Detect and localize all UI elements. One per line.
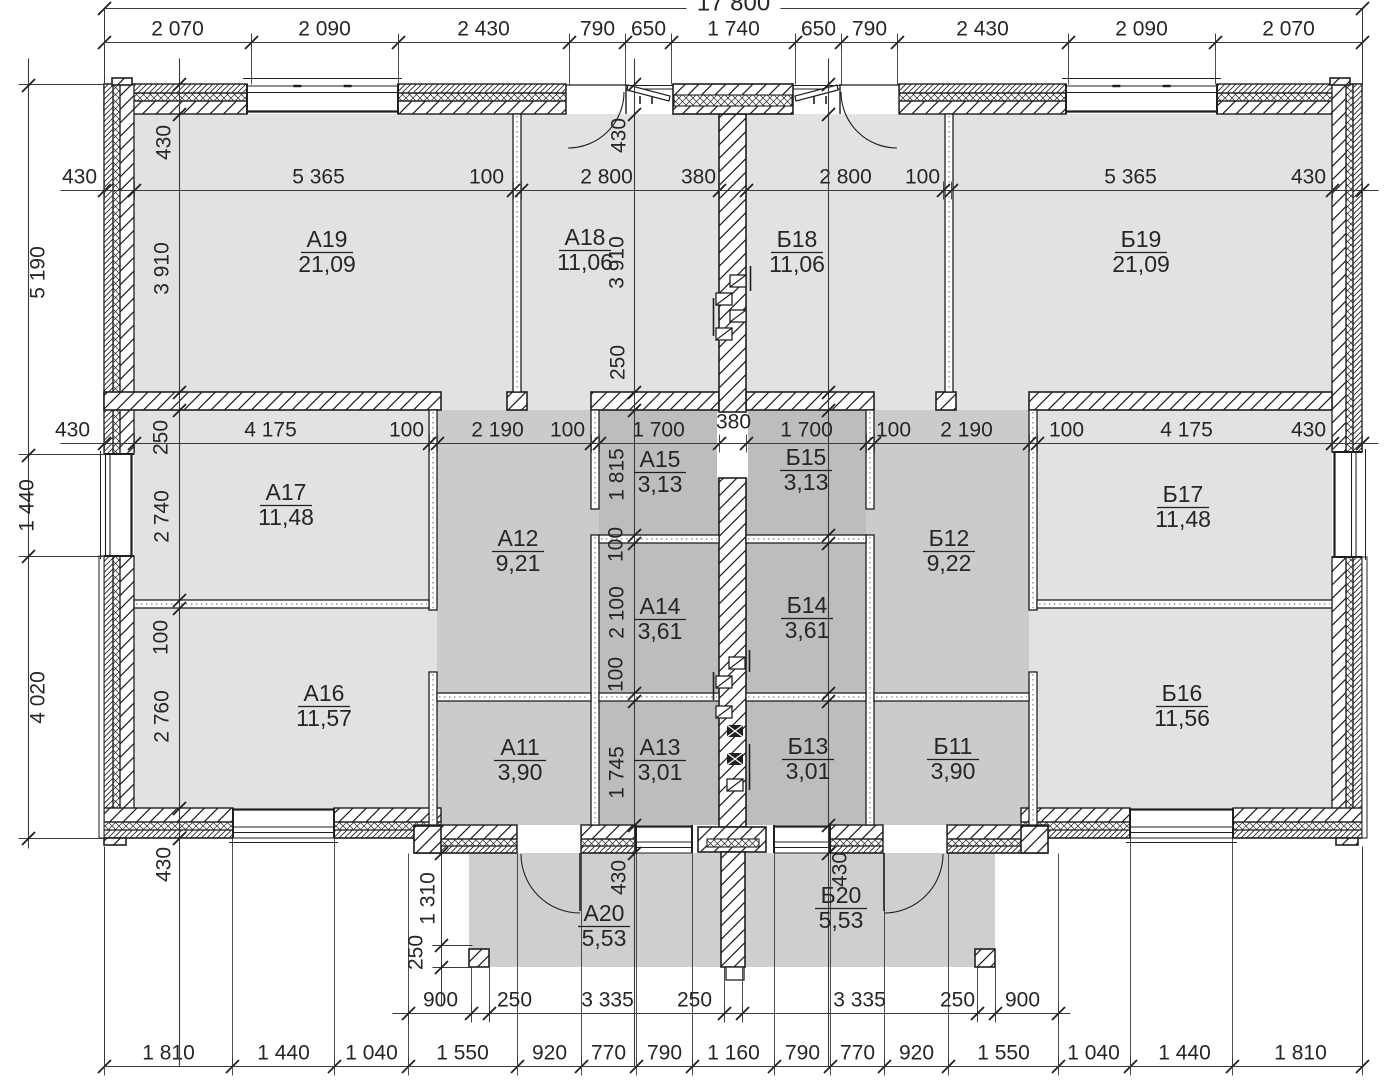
svg-text:5 190: 5 190 — [27, 246, 50, 299]
svg-text:А17: А17 — [266, 479, 307, 505]
svg-text:790: 790 — [852, 18, 887, 41]
svg-text:11,06: 11,06 — [769, 251, 825, 277]
svg-text:430: 430 — [62, 166, 97, 189]
svg-text:770: 770 — [840, 1042, 875, 1065]
svg-text:430: 430 — [55, 419, 90, 442]
svg-text:100: 100 — [905, 166, 940, 189]
svg-text:2 070: 2 070 — [1262, 18, 1315, 41]
svg-text:1 040: 1 040 — [345, 1042, 398, 1065]
svg-text:Б18: Б18 — [777, 226, 818, 252]
svg-text:1 550: 1 550 — [977, 1042, 1030, 1065]
svg-text:790: 790 — [785, 1042, 820, 1065]
svg-text:1 815: 1 815 — [606, 448, 629, 501]
svg-text:100: 100 — [389, 419, 424, 442]
svg-text:3,61: 3,61 — [638, 618, 683, 644]
svg-text:2 190: 2 190 — [940, 419, 993, 442]
svg-text:11,56: 11,56 — [1154, 705, 1210, 731]
svg-text:100: 100 — [605, 657, 628, 692]
svg-text:770: 770 — [591, 1042, 626, 1065]
svg-text:250: 250 — [940, 989, 975, 1012]
svg-text:430: 430 — [153, 847, 176, 882]
svg-text:4 175: 4 175 — [1160, 419, 1213, 442]
svg-text:2 100: 2 100 — [606, 586, 629, 639]
svg-text:11,48: 11,48 — [258, 504, 314, 530]
svg-text:2 800: 2 800 — [580, 166, 633, 189]
svg-text:11,48: 11,48 — [1155, 506, 1211, 532]
svg-text:9,21: 9,21 — [496, 550, 541, 576]
svg-text:3,01: 3,01 — [786, 758, 831, 784]
svg-text:430: 430 — [1291, 419, 1326, 442]
svg-text:А18: А18 — [565, 224, 606, 250]
svg-text:3,13: 3,13 — [638, 471, 683, 497]
svg-text:4 175: 4 175 — [244, 419, 297, 442]
svg-text:3,13: 3,13 — [784, 469, 829, 495]
svg-text:1 160: 1 160 — [707, 1042, 760, 1065]
svg-text:920: 920 — [532, 1042, 567, 1065]
svg-text:2 090: 2 090 — [298, 18, 351, 41]
svg-text:3 910: 3 910 — [151, 242, 174, 295]
svg-text:2 800: 2 800 — [819, 166, 872, 189]
svg-text:5 365: 5 365 — [1104, 166, 1157, 189]
svg-text:250: 250 — [497, 989, 532, 1012]
svg-text:2 740: 2 740 — [151, 490, 174, 543]
svg-text:4 020: 4 020 — [27, 671, 50, 724]
svg-text:9,22: 9,22 — [927, 550, 972, 576]
svg-text:1 440: 1 440 — [16, 479, 39, 532]
svg-text:100: 100 — [876, 419, 911, 442]
svg-text:1 310: 1 310 — [417, 872, 440, 925]
svg-text:100: 100 — [550, 419, 585, 442]
svg-text:1 740: 1 740 — [707, 18, 760, 41]
svg-text:250: 250 — [607, 345, 630, 380]
svg-text:100: 100 — [1049, 419, 1084, 442]
svg-text:1 810: 1 810 — [1274, 1042, 1327, 1065]
svg-text:650: 650 — [631, 18, 666, 41]
svg-text:3 335: 3 335 — [581, 989, 634, 1012]
svg-text:А12: А12 — [498, 525, 539, 551]
svg-text:2 430: 2 430 — [457, 18, 510, 41]
svg-text:Б15: Б15 — [786, 444, 827, 470]
svg-text:5 365: 5 365 — [292, 166, 345, 189]
svg-text:5,53: 5,53 — [819, 907, 864, 933]
svg-text:1 700: 1 700 — [632, 419, 685, 442]
svg-text:2 090: 2 090 — [1115, 18, 1168, 41]
svg-text:1 810: 1 810 — [142, 1042, 195, 1065]
svg-text:Б13: Б13 — [788, 733, 829, 759]
svg-text:11,57: 11,57 — [296, 705, 352, 731]
svg-text:3,90: 3,90 — [498, 759, 543, 785]
svg-text:Б12: Б12 — [929, 525, 970, 551]
svg-text:920: 920 — [899, 1042, 934, 1065]
svg-text:Б16: Б16 — [1162, 680, 1203, 706]
svg-text:3,61: 3,61 — [785, 617, 830, 643]
svg-text:250: 250 — [150, 420, 173, 455]
svg-text:1 440: 1 440 — [1158, 1042, 1211, 1065]
svg-text:21,09: 21,09 — [298, 251, 356, 277]
svg-text:900: 900 — [1005, 989, 1040, 1012]
svg-text:А16: А16 — [304, 680, 345, 706]
svg-text:3,90: 3,90 — [931, 758, 976, 784]
svg-text:430: 430 — [608, 118, 631, 153]
svg-text:250: 250 — [677, 989, 712, 1012]
svg-text:Б20: Б20 — [821, 882, 862, 908]
svg-text:100: 100 — [605, 527, 628, 562]
svg-text:790: 790 — [580, 18, 615, 41]
svg-text:2 430: 2 430 — [956, 18, 1009, 41]
svg-text:380: 380 — [681, 166, 716, 189]
svg-text:5,53: 5,53 — [582, 925, 627, 951]
svg-text:А11: А11 — [500, 734, 539, 760]
svg-text:А19: А19 — [307, 226, 348, 252]
svg-text:3 335: 3 335 — [833, 989, 886, 1012]
svg-text:430: 430 — [608, 860, 631, 895]
svg-text:Б14: Б14 — [787, 592, 828, 618]
svg-text:1 440: 1 440 — [257, 1042, 310, 1065]
svg-text:11,06: 11,06 — [557, 249, 613, 275]
svg-text:790: 790 — [647, 1042, 682, 1065]
svg-text:Б11: Б11 — [934, 733, 973, 759]
svg-text:1 700: 1 700 — [780, 419, 833, 442]
svg-text:А15: А15 — [640, 446, 681, 472]
svg-text:17 800: 17 800 — [697, 0, 770, 17]
svg-text:1 040: 1 040 — [1067, 1042, 1120, 1065]
svg-text:250: 250 — [405, 935, 428, 970]
svg-text:2 760: 2 760 — [151, 690, 174, 743]
svg-text:1 745: 1 745 — [606, 746, 629, 799]
svg-text:430: 430 — [153, 125, 176, 160]
svg-text:Б17: Б17 — [1163, 481, 1204, 507]
svg-text:1 550: 1 550 — [436, 1042, 489, 1065]
svg-text:3,01: 3,01 — [638, 759, 683, 785]
svg-text:380: 380 — [716, 411, 751, 434]
svg-text:100: 100 — [469, 166, 504, 189]
svg-text:2 070: 2 070 — [151, 18, 204, 41]
svg-text:А20: А20 — [584, 900, 625, 926]
svg-text:650: 650 — [801, 18, 836, 41]
svg-text:430: 430 — [1291, 166, 1326, 189]
svg-text:2 190: 2 190 — [471, 419, 524, 442]
svg-text:900: 900 — [423, 989, 458, 1012]
svg-text:Б19: Б19 — [1121, 226, 1162, 252]
svg-text:21,09: 21,09 — [1112, 251, 1170, 277]
svg-text:100: 100 — [150, 620, 173, 655]
svg-text:А14: А14 — [640, 593, 681, 619]
svg-text:А13: А13 — [640, 734, 681, 760]
